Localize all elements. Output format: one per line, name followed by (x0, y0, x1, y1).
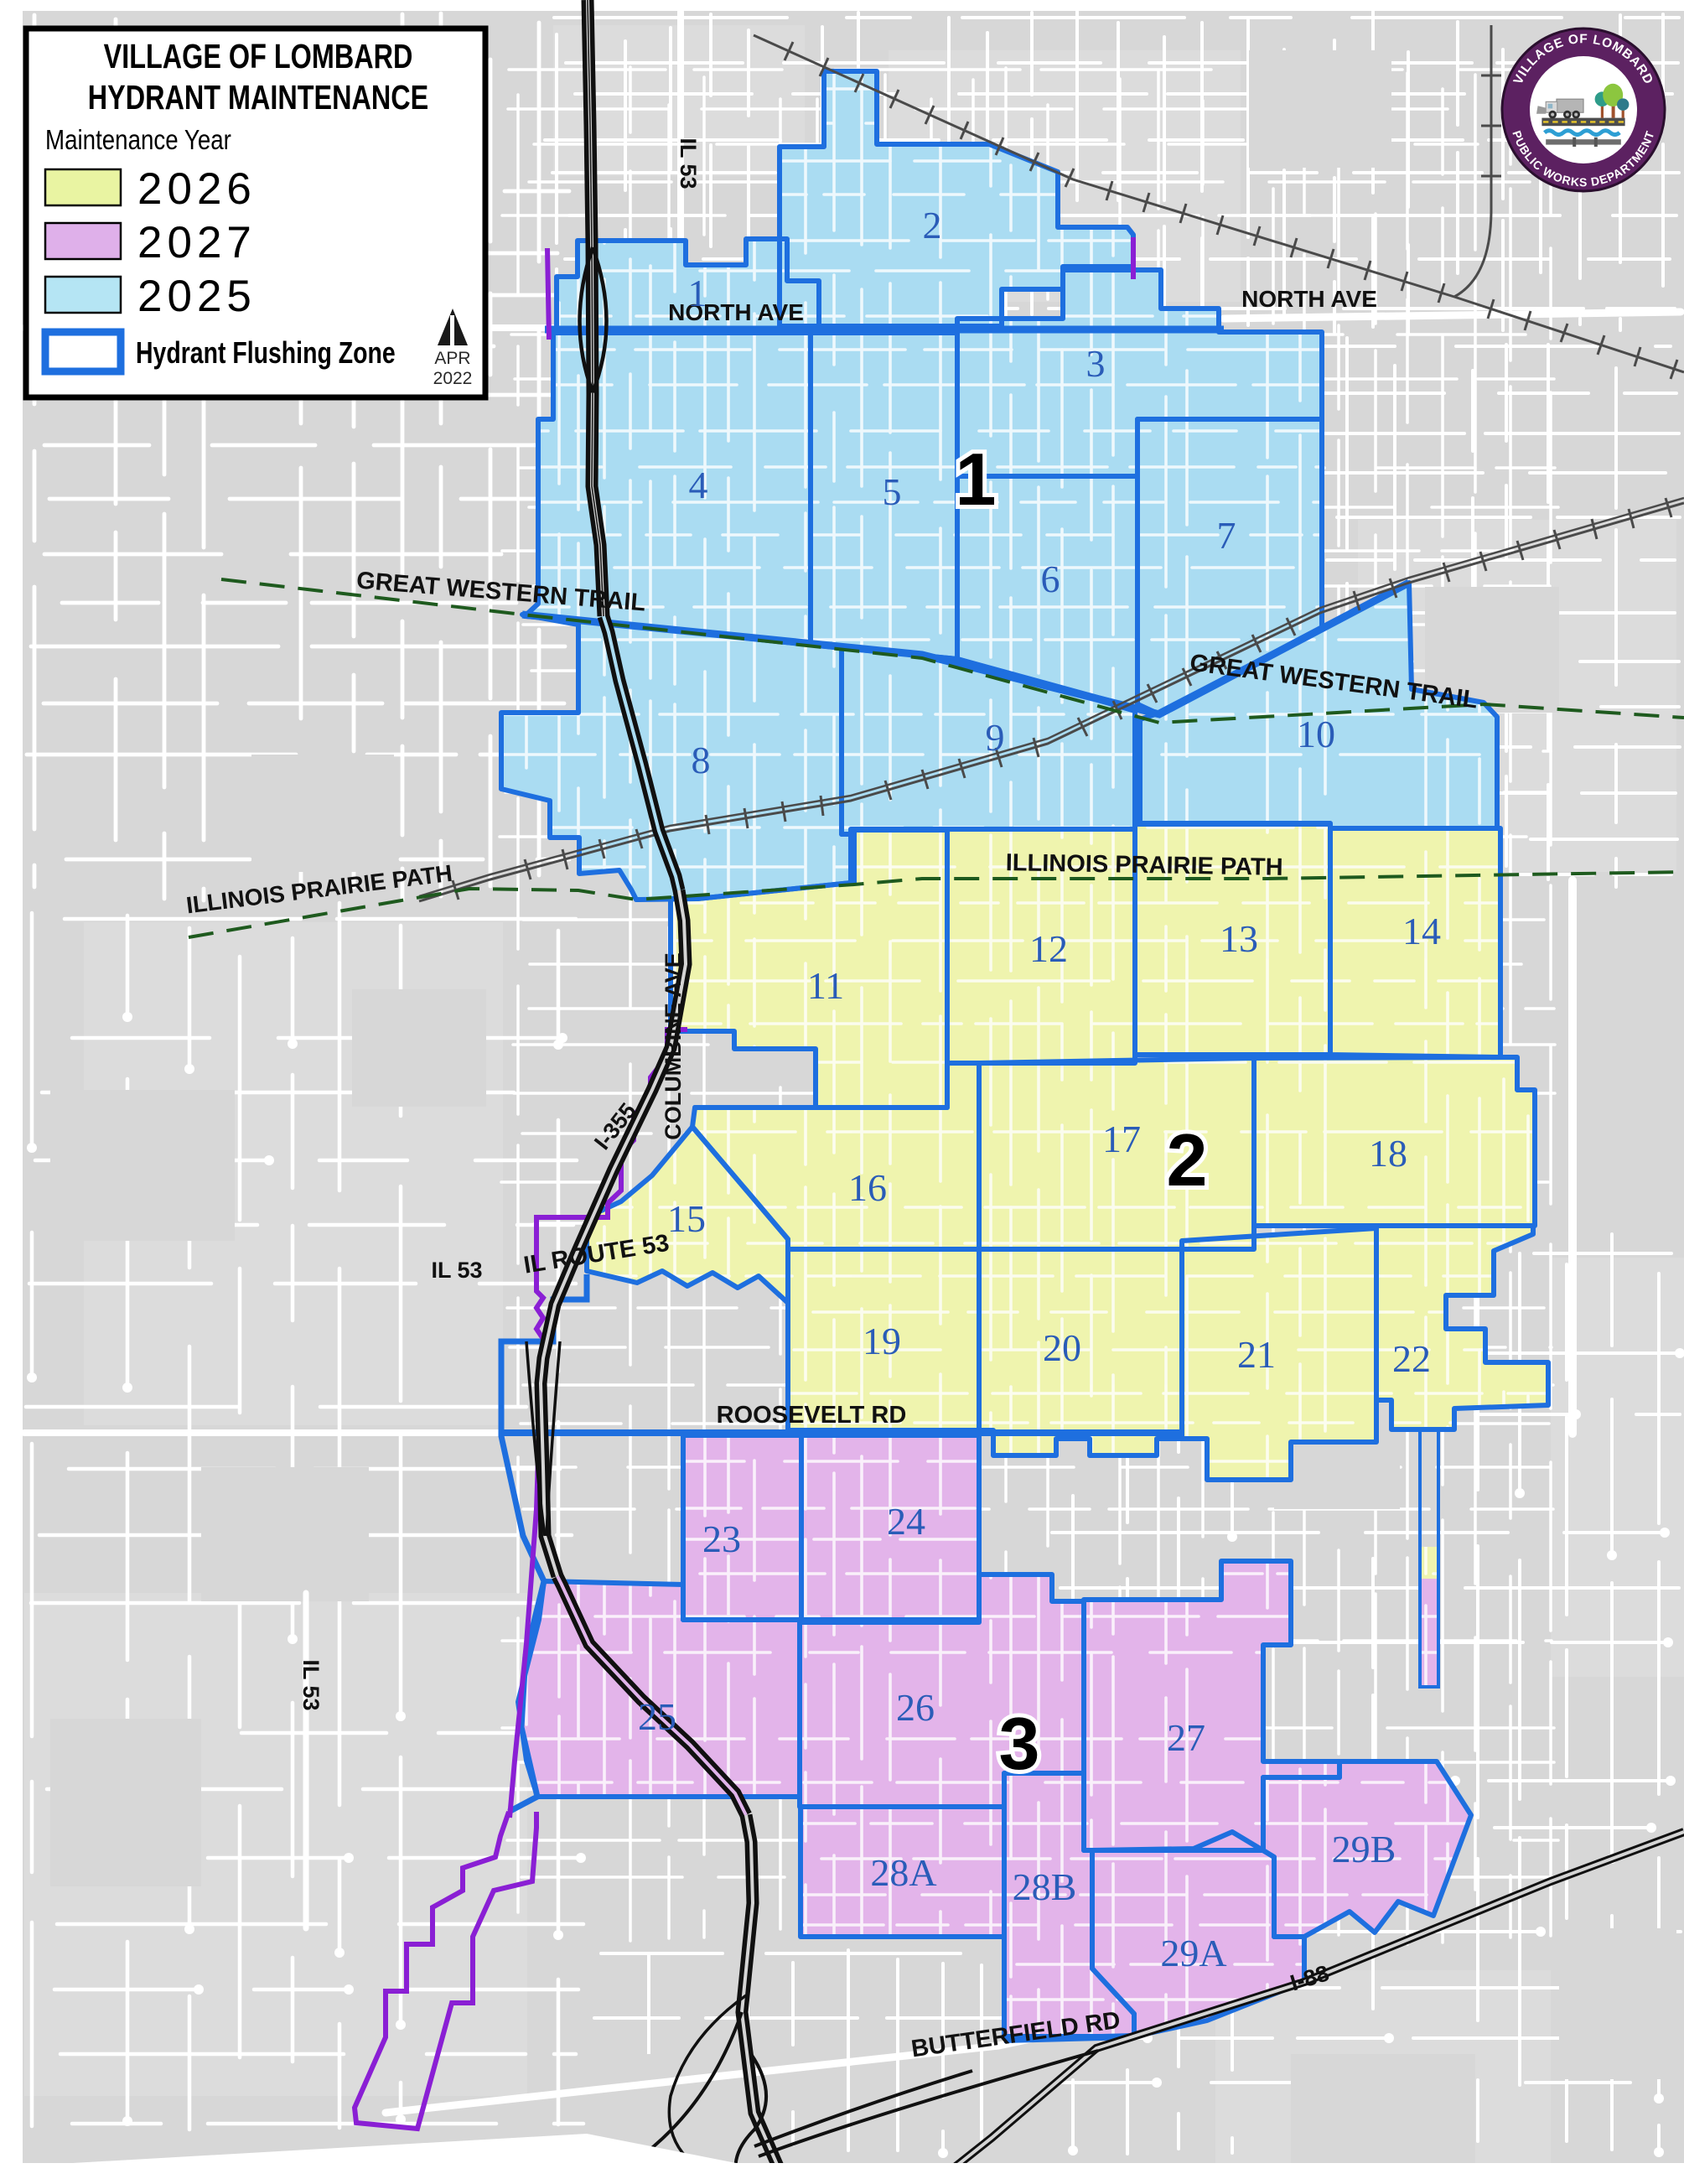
svg-text:7: 7 (1217, 514, 1236, 557)
svg-text:Maintenance Year: Maintenance Year (45, 125, 231, 156)
svg-text:23: 23 (702, 1517, 741, 1560)
svg-text:14: 14 (1402, 910, 1441, 952)
svg-text:Hydrant Flushing Zone: Hydrant Flushing Zone (136, 336, 396, 370)
svg-text:20: 20 (1043, 1326, 1081, 1369)
svg-text:ROOSEVELT RD: ROOSEVELT RD (717, 1402, 907, 1429)
svg-text:1: 1 (956, 438, 997, 521)
svg-text:IL 53: IL 53 (298, 1659, 324, 1710)
svg-text:13: 13 (1220, 917, 1258, 960)
svg-text:9: 9 (986, 716, 1005, 759)
svg-text:12: 12 (1029, 927, 1068, 970)
svg-text:2022: 2022 (433, 369, 473, 388)
svg-text:8: 8 (692, 739, 711, 781)
svg-text:COLUMBINE AVE: COLUMBINE AVE (661, 952, 686, 1140)
svg-text:1: 1 (688, 272, 707, 314)
svg-text:24: 24 (887, 1500, 925, 1543)
svg-text:11: 11 (807, 964, 844, 1007)
svg-text:28A: 28A (870, 1851, 936, 1894)
svg-text:2: 2 (923, 204, 942, 246)
svg-text:HYDRANT MAINTENANCE: HYDRANT MAINTENANCE (88, 78, 429, 116)
svg-text:ILLINOIS PRAIRIE PATH: ILLINOIS PRAIRIE PATH (1005, 849, 1282, 881)
svg-text:3: 3 (1086, 342, 1106, 385)
svg-text:17: 17 (1102, 1118, 1141, 1160)
svg-text:19: 19 (863, 1320, 901, 1362)
svg-text:2027: 2027 (137, 218, 256, 267)
svg-text:18: 18 (1369, 1132, 1407, 1175)
svg-text:21: 21 (1237, 1333, 1276, 1376)
svg-text:26: 26 (896, 1686, 935, 1729)
svg-text:2026: 2026 (137, 164, 256, 214)
svg-text:IL 53: IL 53 (431, 1258, 482, 1283)
svg-text:APR: APR (434, 349, 470, 368)
svg-text:28B: 28B (1013, 1865, 1077, 1908)
svg-text:29A: 29A (1160, 1932, 1226, 1974)
svg-text:16: 16 (848, 1166, 887, 1209)
svg-text:25: 25 (638, 1695, 676, 1738)
svg-text:29B: 29B (1332, 1828, 1396, 1870)
svg-text:VILLAGE OF LOMBARD: VILLAGE OF LOMBARD (104, 37, 413, 75)
svg-text:4: 4 (689, 464, 708, 506)
svg-text:22: 22 (1392, 1337, 1431, 1380)
svg-text:3: 3 (999, 1702, 1040, 1785)
svg-text:2: 2 (1167, 1118, 1208, 1201)
svg-text:10: 10 (1297, 713, 1335, 755)
svg-text:IL 53: IL 53 (676, 137, 701, 189)
svg-text:6: 6 (1041, 558, 1060, 600)
svg-text:15: 15 (667, 1197, 706, 1240)
svg-text:NORTH AVE: NORTH AVE (1241, 286, 1377, 312)
svg-text:5: 5 (883, 470, 902, 513)
svg-text:27: 27 (1167, 1716, 1205, 1759)
svg-text:2025: 2025 (137, 272, 256, 321)
